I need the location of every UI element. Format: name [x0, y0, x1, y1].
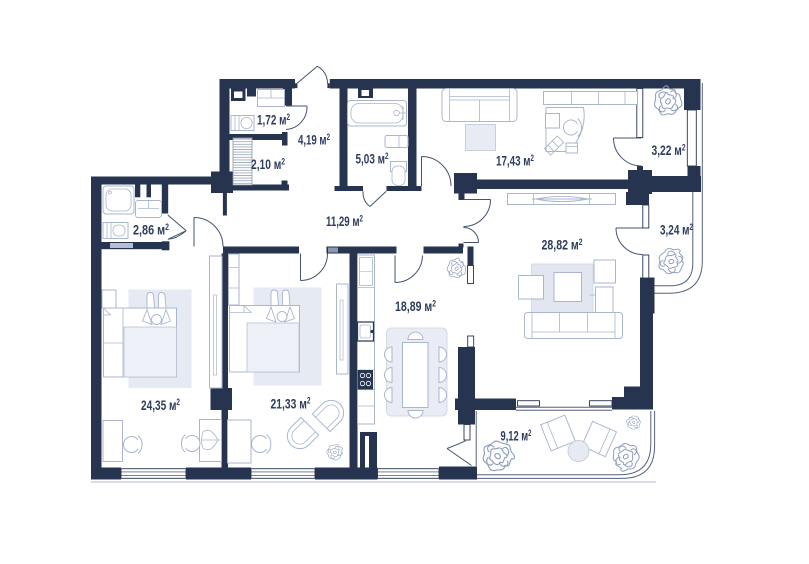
svg-text:17,43 м2: 17,43 м2 [496, 153, 534, 169]
svg-text:2,10 м2: 2,10 м2 [251, 156, 285, 172]
svg-text:28,82 м2: 28,82 м2 [542, 237, 583, 253]
svg-text:18,89 м2: 18,89 м2 [395, 298, 436, 314]
svg-text:3,24 м2: 3,24 м2 [660, 222, 693, 238]
svg-text:9,12 м2: 9,12 м2 [501, 428, 532, 444]
svg-text:3,22 м2: 3,22 м2 [652, 142, 686, 158]
svg-text:4,19 м2: 4,19 м2 [298, 132, 330, 148]
svg-text:5,03 м2: 5,03 м2 [356, 151, 389, 167]
svg-text:11,29 м2: 11,29 м2 [326, 213, 363, 229]
svg-text:24,35 м2: 24,35 м2 [141, 397, 180, 413]
svg-text:21,33 м2: 21,33 м2 [271, 396, 311, 412]
svg-text:2,86 м2: 2,86 м2 [133, 222, 169, 238]
svg-text:1,72 м2: 1,72 м2 [257, 112, 290, 128]
